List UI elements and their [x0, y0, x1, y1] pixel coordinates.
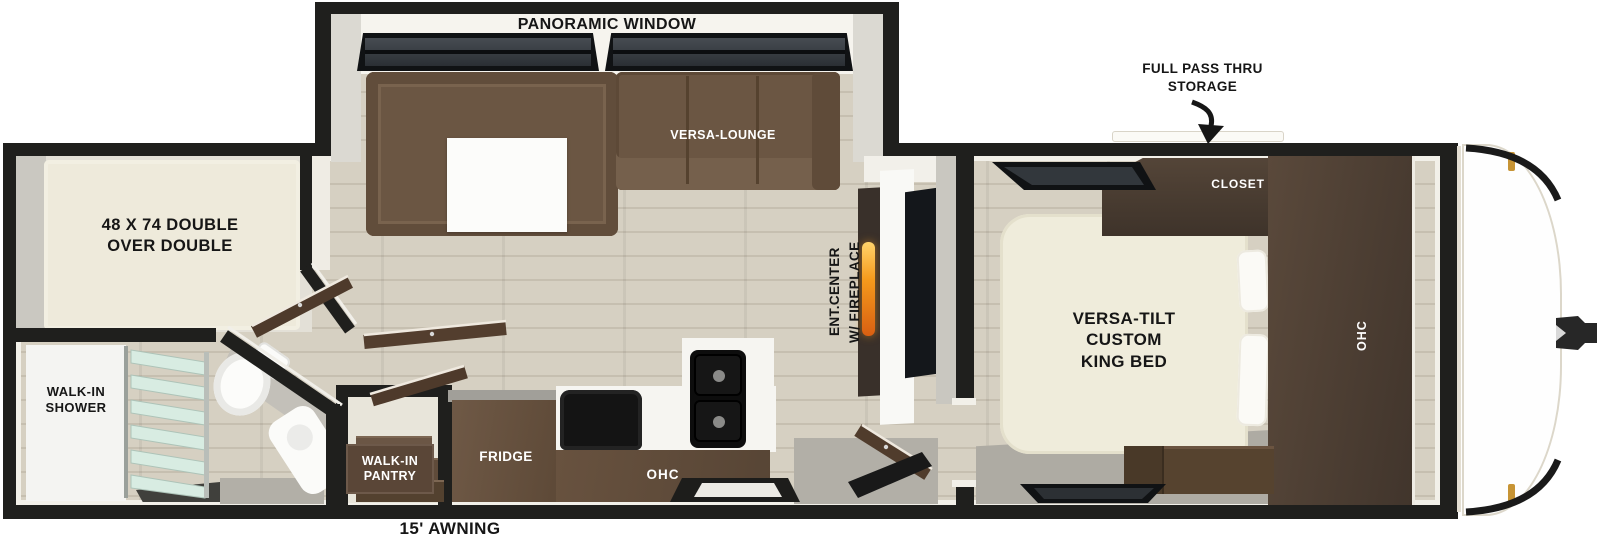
closet-label: CLOSET — [1180, 177, 1296, 192]
walk-in-pantry-label: WALK-IN PANTRY — [362, 454, 418, 484]
door-jamb — [952, 480, 976, 487]
bunk-room-wall — [312, 156, 330, 270]
exterior-wall-top-right — [883, 143, 1442, 156]
body-cap-seam — [1457, 146, 1461, 512]
tv-panel — [905, 188, 937, 378]
slideout-wall-left — [315, 2, 331, 156]
walk-in-shower — [26, 345, 126, 501]
bunk-room-wall — [300, 156, 312, 270]
sofa-armrest — [812, 72, 840, 190]
bunk-room-wall — [16, 156, 46, 332]
panoramic-window-label: PANORAMIC WINDOW — [331, 15, 883, 35]
bedroom-divider-wall — [956, 486, 974, 505]
wardrobe-ohc — [1268, 156, 1415, 505]
pillow — [1236, 334, 1269, 427]
kitchen-ohc-label: OHC — [556, 467, 770, 484]
exterior-wall-bottom — [3, 504, 1442, 519]
window-slat — [613, 50, 845, 54]
exterior-wall-top-left — [3, 143, 330, 156]
bedroom-divider-wall — [956, 156, 974, 404]
closet — [1102, 158, 1272, 236]
bedside-cabinet — [1124, 446, 1164, 494]
bunk-room-wall — [16, 328, 216, 342]
versa-lounge-label: VERSA-LOUNGE — [633, 128, 813, 144]
kitchen-sink — [690, 350, 746, 448]
slideout-sidewall — [853, 14, 883, 162]
walk-in-pantry: WALK-IN PANTRY — [346, 444, 434, 494]
panoramic-window-right — [605, 33, 853, 71]
door-jamb — [952, 398, 976, 405]
front-cap — [1462, 144, 1562, 516]
pass-thru-storage-label: FULL PASS THRU STORAGE — [1100, 60, 1305, 96]
pass-thru-storage-hatch — [1112, 131, 1284, 142]
entry-floor — [794, 438, 938, 504]
pantry-wall — [336, 385, 452, 397]
bedroom-ohc-label: OHC — [1348, 298, 1378, 374]
bunk-bed-label: 48 X 74 DOUBLE OVER DOUBLE — [60, 215, 280, 256]
pillow — [1236, 249, 1269, 312]
ent-center-label: ENT.CENTER W/ FIREPLACE — [816, 206, 874, 378]
exterior-wall-rear — [3, 143, 16, 519]
exterior-wall-front — [1440, 143, 1458, 519]
hitch-coupler-icon — [1556, 316, 1597, 350]
window-slat — [365, 50, 591, 54]
awning-label: 15' AWNING — [370, 518, 530, 539]
sink-basin — [694, 400, 742, 442]
fridge-label: FRIDGE — [452, 449, 560, 466]
slideout-wall-right — [883, 2, 899, 156]
sink-basin — [694, 354, 742, 396]
walk-in-shower-label: WALK-IN SHOWER — [28, 384, 124, 417]
king-bed-label: VERSA-TILT CUSTOM KING BED — [1012, 308, 1236, 372]
sink-bowl — [282, 419, 318, 455]
lounge-table — [447, 138, 567, 232]
slideout-wall-top — [315, 2, 899, 14]
panoramic-window-left — [357, 33, 599, 71]
slideout-sidewall — [331, 14, 361, 162]
rv-floorplan: WALK-IN PANTRY — [0, 0, 1600, 540]
marker-light-icon — [1508, 484, 1515, 503]
range-cooktop — [560, 390, 642, 450]
marker-light-icon — [1508, 152, 1515, 171]
